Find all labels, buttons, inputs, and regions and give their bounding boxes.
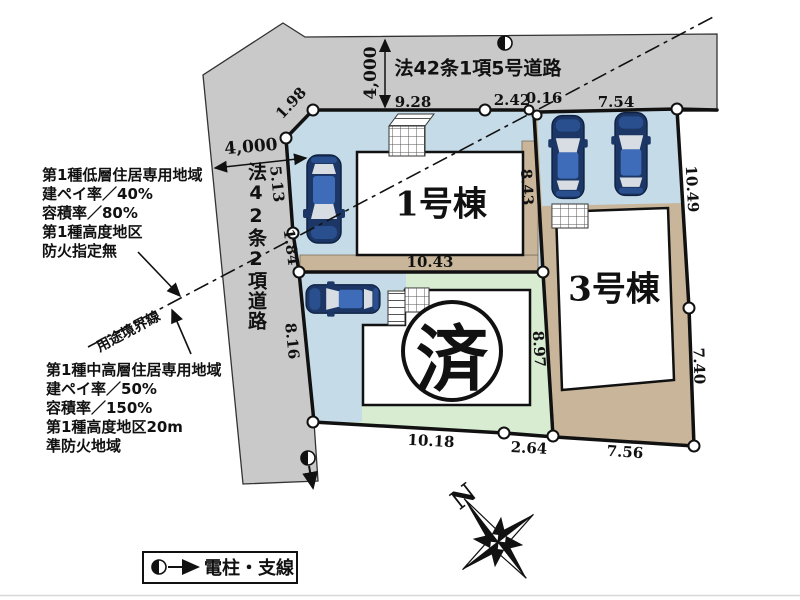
site-plan: 法42条1項5号道路 法42条2項道路 4,000 4,000 9.28 2.4… xyxy=(0,0,800,600)
building-3-label: 3号棟 xyxy=(568,262,660,311)
zoning-south-line4: 第1種高度地区20m xyxy=(46,418,221,437)
building-1-label: 1号棟 xyxy=(395,177,487,226)
road-name-top: 法42条1項5号道路 xyxy=(395,54,562,81)
dim-inner-2: 10.43 xyxy=(407,253,454,271)
zoning-block-south: 第1種中高層住居専用地域 建ペイ率／50% 容積率／150% 第1種高度地区20… xyxy=(46,361,221,456)
zoning-north-line5: 防火指定無 xyxy=(42,242,202,261)
utility-pole-icon-legend xyxy=(152,560,166,574)
zoning-south-line3: 容積率／150% xyxy=(46,399,221,418)
road-name-left: 法42条2項道路 xyxy=(243,162,269,332)
zoning-block-north: 第1種低層住居専用地域 建ペイ率／40% 容積率／80% 第1種高度地区 防火指… xyxy=(42,166,202,261)
road-width-top: 4,000 xyxy=(361,46,381,99)
dim-bottom-2: 2.64 xyxy=(510,438,547,458)
dim-inner-1: 8.43 xyxy=(517,168,537,205)
zoning-south-line1: 第1種中高層住居専用地域 xyxy=(46,361,221,380)
dim-bottom-1: 10.18 xyxy=(407,431,455,451)
boundary-leader-arrow-bottom xyxy=(172,310,191,354)
zoning-north-line1: 第1種低層住居専用地域 xyxy=(42,166,202,185)
zoning-north-line2: 建ペイ率／40% xyxy=(42,185,202,204)
legend-label: 電柱・支線 xyxy=(204,554,294,580)
car-lot3-b xyxy=(611,113,650,196)
dim-left-2: 5.13 xyxy=(266,165,288,203)
dim-inner-3: 8.97 xyxy=(529,330,550,368)
dim-bottom-3: 7.56 xyxy=(606,442,644,463)
sold-mark-label: 済 xyxy=(416,301,488,406)
dim-right-1: 10.49 xyxy=(682,165,702,213)
car-lot3-a xyxy=(548,116,587,199)
car-lot2 xyxy=(306,281,380,316)
utility-pole-icon-top xyxy=(498,36,512,50)
dim-top-1: 9.28 xyxy=(395,93,432,111)
dim-left-4: 8.16 xyxy=(281,322,303,360)
zoning-north-line3: 容積率／80% xyxy=(42,204,202,223)
site-plan-drawing xyxy=(0,0,800,600)
dim-right-2: 7.40 xyxy=(689,347,708,384)
zoning-south-line2: 建ペイ率／50% xyxy=(46,380,221,399)
dim-top-4: 7.54 xyxy=(598,93,635,111)
dim-top-3: 0.16 xyxy=(526,89,563,107)
zoning-north-line4: 第1種高度地区 xyxy=(42,223,202,242)
zoning-south-line5: 準防火地域 xyxy=(46,437,221,456)
